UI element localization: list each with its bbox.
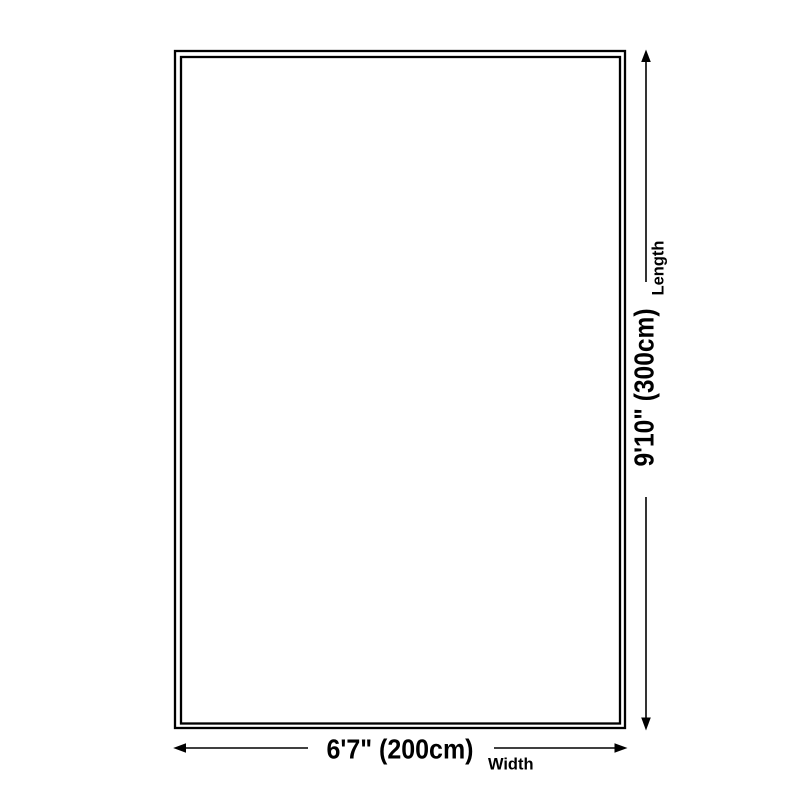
svg-text:Width: Width <box>488 756 534 774</box>
svg-text:9'10" (300cm): 9'10" (300cm) <box>629 309 660 467</box>
svg-text:Length: Length <box>650 241 668 296</box>
svg-text:6'7" (200cm): 6'7" (200cm) <box>327 734 474 765</box>
